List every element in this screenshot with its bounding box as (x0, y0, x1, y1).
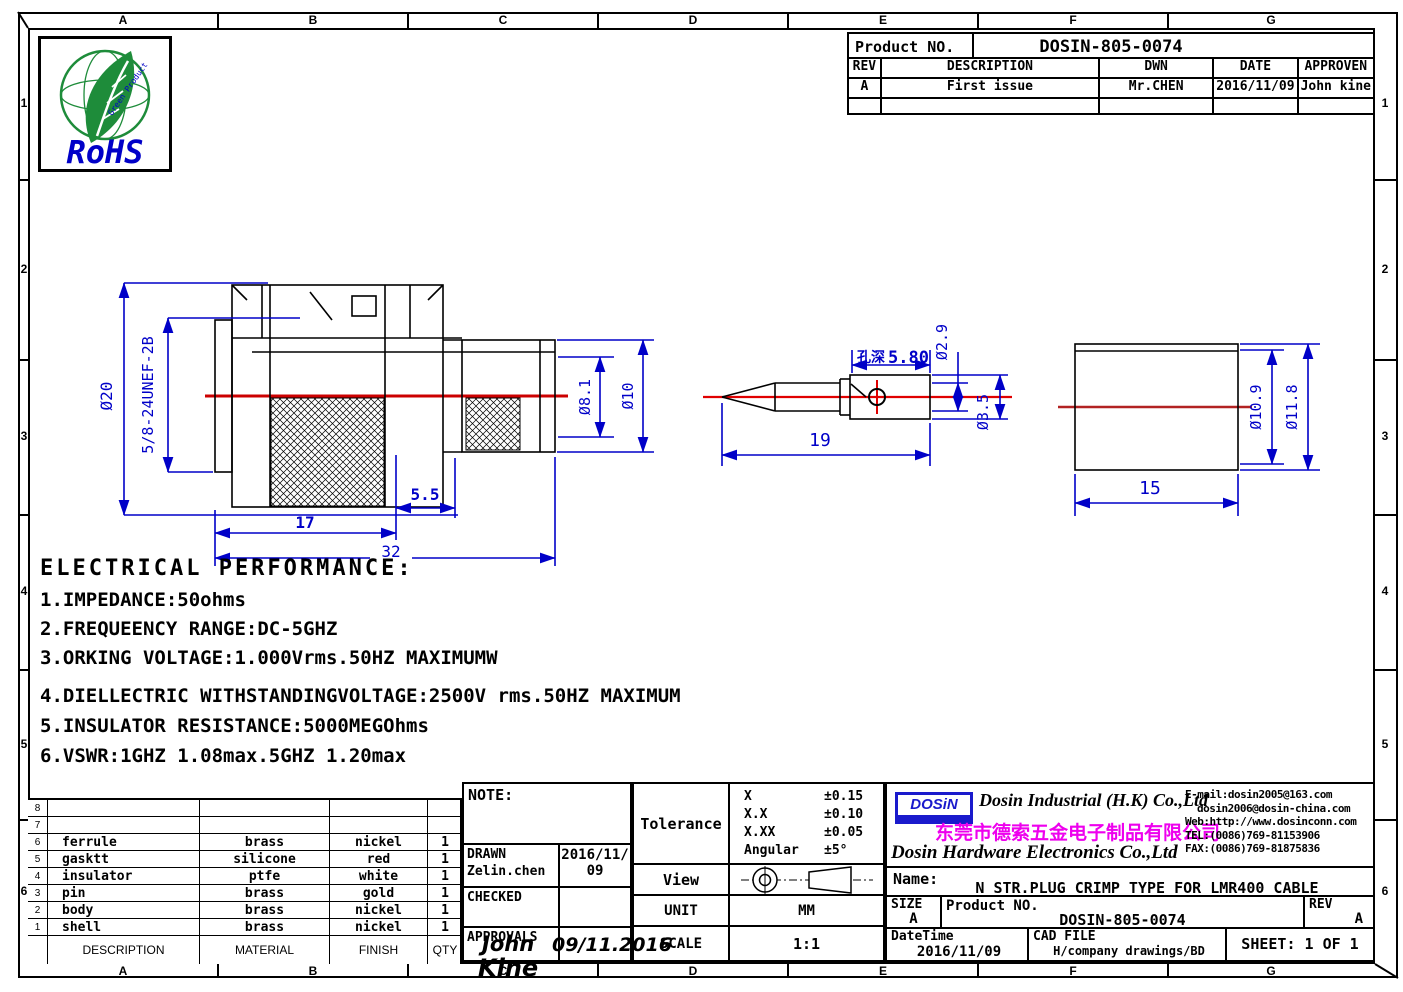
tol-sym: X.XX (744, 824, 824, 842)
product-no-value: DOSIN-805-0074 (942, 911, 1303, 929)
revision-product-row: Product NO. DOSIN-805-0074 (849, 34, 1373, 59)
dosin-logo-text: DOSiN (898, 795, 970, 815)
electrical-item: 5.INSULATOR RESISTANCE:5000MEGOhms (40, 714, 740, 738)
datetime-value: 2016/11/09 (891, 944, 1027, 960)
tol-val: ±0.15 (824, 788, 863, 806)
electrical-item: 1.IMPEDANCE:50ohms (40, 588, 740, 612)
dim-len17: 17 (295, 513, 314, 532)
product-no-value: DOSIN-805-0074 (849, 37, 1373, 57)
parts-table: 8 7 6 ferrule brass nickel 1 5 gasktt si… (28, 798, 462, 964)
header-qty: QTY (428, 936, 462, 964)
approvals-date: 09/11.2016 (552, 934, 672, 956)
drawn-date: 2016/11/ (560, 847, 630, 863)
approvals-signature-2: Kine (478, 954, 538, 982)
dim-dia118: Ø11.8 (1283, 384, 1301, 429)
company-email-1: E-mail:dosin2005@163.com (1185, 788, 1373, 802)
electrical-title: ELECTRICAL PERFORMANCE: (40, 556, 740, 582)
part-name-row: Name: N STR.PLUG CRIMP TYPE FOR LMR400 C… (887, 868, 1373, 896)
dwn-value: Mr.CHEN (1100, 79, 1214, 97)
unit-value: MM (730, 896, 883, 925)
dim-len19: 19 (809, 430, 831, 451)
part-finish: nickel (330, 834, 428, 851)
header-material: MATERIAL (200, 936, 330, 964)
header-finish: FINISH (330, 936, 428, 964)
rohs-label: RoHS (66, 133, 143, 169)
row-no: 2 (28, 902, 48, 919)
company-email-2: dosin2006@dosin-china.com (1185, 802, 1373, 816)
note-label: NOTE: (464, 784, 630, 845)
approvals-signature: John (482, 932, 534, 956)
row-no: 3 (28, 885, 48, 902)
electrical-item: 3.ORKING VOLTAGE:1.000Vrms.50HZ MAXIMUMW (40, 646, 740, 670)
part-description: pin (48, 885, 200, 902)
rohs-logo: Green Product RoHS (38, 36, 172, 172)
dim-dia35: Ø3.5 (974, 394, 992, 430)
company-name-en2: Dosin Hardware Electronics Co.,Ltd (891, 842, 1178, 864)
dim-dia81: Ø8.1 (576, 379, 594, 415)
part-qty: 1 (428, 919, 462, 936)
revision-data-row: A First issue Mr.CHEN 2016/11/09 John ki… (849, 79, 1373, 99)
tol-val: ±0.10 (824, 806, 863, 824)
dim-dia10: Ø10 (619, 382, 637, 409)
rev-value: A (1305, 912, 1373, 927)
part-qty: 1 (428, 834, 462, 851)
approven-value: John kine (1299, 79, 1373, 97)
rev-value: A (849, 79, 882, 97)
part-description: ferrule (48, 834, 200, 851)
part-material: brass (200, 885, 330, 902)
company-tel: TEL:(0086)769-81153906 (1185, 829, 1373, 843)
view-label: View (634, 865, 730, 894)
title-block: DOSiN Dosin Industrial (H.K) Co.,Ltd 东莞市… (885, 782, 1375, 962)
dim-len15: 15 (1139, 478, 1161, 499)
scale-value: 1:1 (730, 927, 883, 960)
company-web: Web:http://www.dosinconn.com (1185, 815, 1373, 829)
drawn-row: DRAWN Zelin.chen 2016/11/ 09 (464, 845, 630, 888)
dim-hole-depth: 5.80 (888, 348, 929, 368)
revision-header-row: REV DESCRIPTION DWN DATE APPROVEN (849, 59, 1373, 79)
row-no: 1 (28, 919, 48, 936)
header-description: DESCRIPTION (48, 936, 200, 964)
part-material: silicone (200, 851, 330, 868)
sheet-number: SHEET: 1 OF 1 (1227, 929, 1373, 960)
part-description: body (48, 902, 200, 919)
revision-empty-row (849, 99, 1373, 113)
dim-dia20: Ø20 (97, 382, 116, 411)
tol-sym: Angular (744, 842, 824, 860)
drawn-label: DRAWN (467, 846, 555, 863)
company-contact: E-mail:dosin2005@163.com dosin2006@dosin… (1185, 788, 1373, 856)
tol-sym: X (744, 788, 824, 806)
part-description: shell (48, 919, 200, 936)
company-info: DOSiN Dosin Industrial (H.K) Co.,Ltd 东莞市… (887, 784, 1373, 868)
datetime-cad-sheet-row: DateTime 2016/11/09 CAD FILE H/company d… (887, 929, 1373, 960)
dim-dia29: Ø2.9 (933, 324, 951, 360)
part-finish: red (330, 851, 428, 868)
part-qty: 1 (428, 868, 462, 885)
row-no: 5 (28, 851, 48, 868)
datetime-label: DateTime (891, 930, 1027, 944)
revision-table: Product NO. DOSIN-805-0074 REV DESCRIPTI… (847, 32, 1375, 115)
dim-hole-depth-label: 孔深 (857, 349, 885, 366)
dim-dia109: Ø10.9 (1247, 384, 1265, 429)
tol-val: ±0.05 (824, 824, 863, 842)
size-product-rev-row: SIZE A Product NO. DOSIN-805-0074 REV A (887, 897, 1373, 929)
sleeve-side-view: Ø10.9 Ø11.8 15 (1058, 344, 1320, 516)
col-description: DESCRIPTION (882, 59, 1100, 77)
electrical-performance: ELECTRICAL PERFORMANCE: 1.IMPEDANCE:50oh… (40, 556, 740, 768)
part-finish: white (330, 868, 428, 885)
company-fax: FAX:(0086)769-81875836 (1185, 842, 1373, 856)
size-label: SIZE (887, 897, 940, 912)
part-description: insulator (48, 868, 200, 885)
col-rev: REV (849, 59, 882, 77)
part-name-value: N STR.PLUG CRIMP TYPE FOR LMR400 CABLE (927, 879, 1367, 897)
checked-row: CHECKED (464, 888, 630, 928)
size-value: A (887, 912, 940, 927)
knurl-band-2 (466, 398, 520, 450)
row-no: 7 (28, 817, 48, 834)
drawing-sheet: A B C D E F G A B C D E F G 1 2 3 4 5 6 … (0, 0, 1403, 992)
part-finish: nickel (330, 919, 428, 936)
part-qty: 1 (428, 885, 462, 902)
row-no: 4 (28, 868, 48, 885)
part-material: brass (200, 919, 330, 936)
company-name-cn: 东莞市德索五金电子制品有限公司 (935, 818, 1220, 845)
description-value: First issue (882, 79, 1100, 97)
col-approven: APPROVEN (1299, 59, 1373, 77)
part-qty: 1 (428, 902, 462, 919)
part-material: ptfe (200, 868, 330, 885)
col-date: DATE (1214, 59, 1298, 77)
cad-file-value: H/company drawings/BD (1033, 944, 1225, 958)
row-no: 6 (28, 834, 48, 851)
electrical-item: 2.FREQUEENCY RANGE:DC-5GHZ (40, 617, 740, 641)
electrical-item: 4.DIELLECTRIC WITHSTANDINGVOLTAGE:2500V … (40, 684, 740, 708)
part-material: brass (200, 834, 330, 851)
checked-label: CHECKED (467, 889, 555, 906)
dim-len55: 5.5 (411, 485, 440, 504)
rohs-leaf-icon: Green Product RoHS (41, 39, 169, 169)
part-material: brass (200, 902, 330, 919)
part-finish: gold (330, 885, 428, 902)
company-name-en1: Dosin Industrial (H.K) Co.,Ltd (979, 790, 1208, 811)
pin-side-view: 孔深 5.80 19 Ø2.9 Ø3.5 (703, 324, 1012, 466)
unit-label: UNIT (634, 896, 730, 925)
part-description: gasktt (48, 851, 200, 868)
dim-thread: 5/8-24UNEF-2B (139, 336, 157, 453)
tolerance-label: Tolerance (634, 784, 730, 863)
knurl-band-1 (271, 398, 384, 506)
part-qty: 1 (428, 851, 462, 868)
drawn-name: Zelin.chen (467, 863, 555, 880)
cad-file-label: CAD FILE (1033, 930, 1225, 944)
col-dwn: DWN (1100, 59, 1214, 77)
electrical-item: 6.VSWR:1GHZ 1.08max.5GHZ 1.20max (40, 744, 740, 768)
date-value: 2016/11/09 (1214, 79, 1298, 97)
connector-side-view: Ø20 5/8-24UNEF-2B Ø8.1 Ø10 5.5 17 32 (97, 283, 654, 566)
third-angle-projection-icon (737, 866, 877, 894)
rev-label: REV (1305, 897, 1373, 912)
tol-val: ±5° (824, 842, 847, 860)
row-no: 8 (28, 800, 48, 817)
connector-dimensions (124, 283, 654, 566)
tol-sym: X.X (744, 806, 824, 824)
part-finish: nickel (330, 902, 428, 919)
